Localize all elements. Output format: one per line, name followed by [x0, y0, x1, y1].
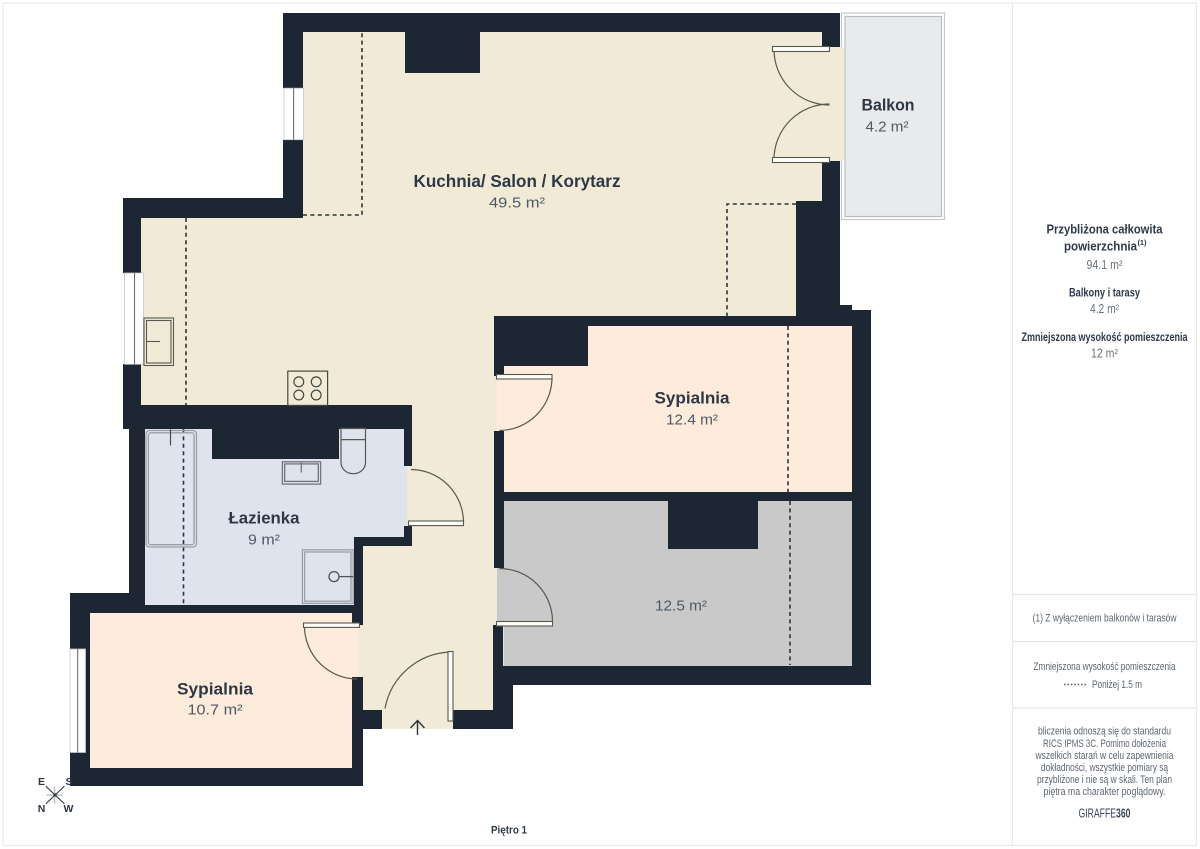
- svg-text:(1) Z wyłączeniem balkonów i t: (1) Z wyłączeniem balkonów i tarasów: [1033, 613, 1178, 625]
- svg-text:Zmniejszona wysokość pomieszcz: Zmniejszona wysokość pomieszczenia: [1022, 330, 1188, 344]
- svg-text:powierzchnia(1): powierzchnia(1): [1064, 238, 1147, 254]
- svg-text:Balkon: Balkon: [862, 96, 915, 115]
- svg-text:RICS IPMS 3C. Pomimo dołożenia: RICS IPMS 3C. Pomimo dołożenia: [1043, 738, 1167, 750]
- svg-text:Balkony i tarasy: Balkony i tarasy: [1069, 286, 1140, 300]
- svg-text:49.5 m²: 49.5 m²: [489, 196, 545, 212]
- svg-text:12.5 m²: 12.5 m²: [655, 599, 707, 615]
- svg-text:E: E: [38, 776, 45, 788]
- svg-text:Łazienka: Łazienka: [229, 509, 301, 528]
- svg-text:12.4 m²: 12.4 m²: [666, 413, 718, 429]
- svg-text:przybliżone i nie są w skali.: przybliżone i nie są w skali. Ten plan: [1037, 774, 1172, 786]
- svg-text:Poniżej 1.5 m: Poniżej 1.5 m: [1092, 679, 1142, 691]
- svg-text:10.7 m²: 10.7 m²: [188, 703, 243, 719]
- svg-text:S: S: [65, 776, 72, 788]
- svg-text:Sypialnia: Sypialnia: [655, 389, 731, 408]
- svg-text:GIRAFFE360: GIRAFFE360: [1079, 806, 1131, 821]
- svg-text:9 m²: 9 m²: [248, 533, 280, 549]
- svg-text:4.2 m²: 4.2 m²: [1090, 301, 1120, 316]
- svg-text:bliczenia odnoszą się do stand: bliczenia odnoszą się do standardu: [1038, 726, 1171, 738]
- svg-text:piętra ma charakter poglądowy.: piętra ma charakter poglądowy.: [1044, 786, 1166, 798]
- svg-text:W: W: [64, 803, 74, 815]
- svg-text:Zmniejszona wysokość pomieszcz: Zmniejszona wysokość pomieszczenia: [1034, 661, 1177, 673]
- svg-text:wszelkich starań w celu zapewn: wszelkich starań w celu zapewnienia: [1035, 750, 1174, 762]
- svg-text:4.2 m²: 4.2 m²: [866, 120, 909, 136]
- svg-text:12 m²: 12 m²: [1091, 346, 1119, 361]
- svg-text:dokładności, wszystkie pomiary: dokładności, wszystkie pomiary są: [1041, 762, 1169, 774]
- svg-text:Przybliżona całkowita: Przybliżona całkowita: [1047, 222, 1164, 237]
- svg-text:94.1 m²: 94.1 m²: [1087, 257, 1124, 272]
- svg-text:Piętro 1: Piętro 1: [491, 825, 527, 837]
- svg-text:Sypialnia: Sypialnia: [177, 680, 254, 699]
- svg-text:Kuchnia/ Salon / Korytarz: Kuchnia/ Salon / Korytarz: [414, 171, 621, 191]
- svg-text:N: N: [38, 803, 46, 815]
